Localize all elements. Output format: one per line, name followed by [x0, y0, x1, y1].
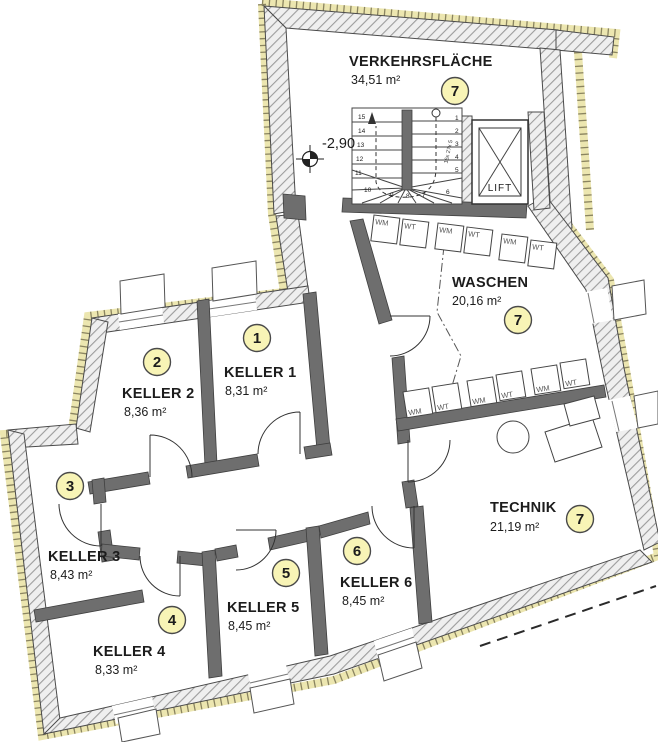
lightwell: [612, 280, 646, 320]
room-area: 8,31 m²: [225, 384, 267, 398]
step-number: 5: [455, 167, 459, 174]
room-area: 8,43 m²: [50, 568, 92, 582]
room-name: WASCHEN: [452, 275, 528, 291]
washer-label: WM: [375, 217, 389, 228]
unit-badge-number: 6: [353, 543, 361, 560]
step-number: 9: [390, 192, 394, 199]
room-name: KELLER 3: [48, 549, 121, 565]
lightwell: [634, 391, 658, 428]
step-number: 6: [446, 189, 450, 196]
room-area: 8,45 m²: [342, 594, 384, 608]
appliances-top-row: WM WT WM WT WM WT: [371, 215, 557, 269]
floor-plan-page: 15 14 13 12 11 1 2 3 4 5 6 7 8 9 10 16x …: [0, 0, 658, 742]
room-label-keller5: KELLER 5 8,45 m² 5: [227, 560, 300, 634]
lift-shaft: LIFT: [472, 120, 528, 204]
room-label-verkehrsflaeche: VERKEHRSFLÄCHE 34,51 m² 7: [349, 53, 493, 105]
dryer-label: WT: [532, 242, 545, 252]
room-name: KELLER 4: [93, 644, 166, 660]
level-value: -2,90: [322, 136, 355, 152]
unit-badge-number: 7: [451, 83, 459, 100]
room-area: 34,51 m²: [351, 73, 400, 87]
room-area: 20,16 m²: [452, 294, 501, 308]
level-marker: -2,90: [296, 136, 355, 173]
washer-label: WM: [503, 236, 517, 247]
washer-label: WM: [439, 225, 453, 236]
dryer-label: WT: [404, 221, 417, 231]
step-number: 4: [455, 154, 459, 161]
room-label-keller4: KELLER 4 8,33 m² 4: [93, 607, 186, 678]
unit-badge-number: 1: [253, 330, 261, 347]
waschen-zone-line: [437, 246, 461, 396]
unit-badge-number: 3: [66, 478, 74, 495]
stair-spine-wall: [402, 110, 412, 190]
lightwell: [212, 261, 257, 301]
exterior-walls: [8, 6, 658, 734]
room-name: VERKEHRSFLÄCHE: [349, 53, 493, 70]
step-number: 13: [357, 142, 365, 149]
lightwell: [120, 274, 165, 314]
step-number: 3: [455, 141, 459, 148]
unit-badge-number: 2: [153, 354, 161, 371]
step-number: 7: [422, 192, 426, 199]
step-number: 14: [358, 128, 366, 135]
room-area: 8,33 m²: [95, 663, 137, 677]
room-name: TECHNIK: [490, 500, 557, 516]
room-name: KELLER 1: [224, 365, 297, 381]
step-number: 15: [358, 114, 366, 121]
room-name: KELLER 6: [340, 575, 413, 591]
windows: [112, 261, 658, 742]
room-label-keller1: KELLER 1 8,31 m² 1: [224, 325, 297, 399]
room-name: KELLER 2: [122, 386, 195, 402]
lift-label: LIFT: [488, 183, 513, 194]
dryer-label: WT: [468, 229, 481, 239]
room-area: 8,45 m²: [228, 619, 270, 633]
boiler-tank: [497, 421, 529, 453]
room-label-keller6: KELLER 6 8,45 m² 6: [340, 538, 413, 609]
room-label-technik: TECHNIK 21,19 m² 7: [490, 500, 594, 534]
step-number: 1: [455, 115, 459, 122]
room-label-waschen: WASCHEN 20,16 m² 7: [452, 275, 532, 334]
step-number: 2: [455, 128, 459, 135]
staircase: 15 14 13 12 11 1 2 3 4 5 6 7 8 9 10 16x …: [352, 108, 462, 204]
room-area: 21,19 m²: [490, 520, 539, 534]
floor-plan-drawing: 15 14 13 12 11 1 2 3 4 5 6 7 8 9 10 16x …: [0, 0, 658, 742]
room-label-keller2: KELLER 2 8,36 m² 2: [122, 349, 195, 420]
dryer-label: WT: [565, 378, 578, 389]
room-name: KELLER 5: [227, 600, 300, 616]
step-number: 11: [355, 170, 362, 177]
unit-badge-number: 7: [576, 511, 584, 528]
unit-badge-number: 4: [168, 612, 177, 629]
step-number: 8: [406, 193, 410, 200]
walkline-start: [432, 109, 440, 117]
dryer-label: WT: [501, 390, 514, 401]
dryer-label: WT: [437, 402, 450, 413]
unit-badge-number: 7: [514, 312, 522, 329]
unit-badge-number: 5: [282, 565, 290, 582]
step-number: 12: [356, 156, 364, 163]
step-number: 10: [364, 187, 372, 194]
room-area: 8,36 m²: [124, 405, 166, 419]
